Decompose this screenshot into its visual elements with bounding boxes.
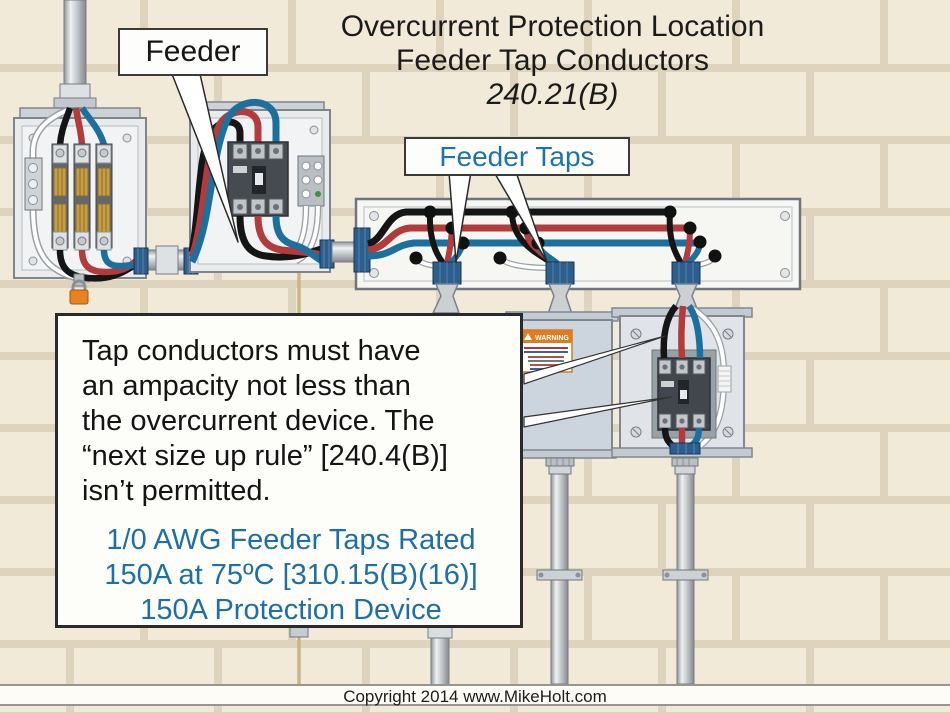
fuse-blocks [52,144,112,250]
note-box: Tap conductors must have an ampacity not… [55,313,523,628]
warning-text: WARNING [535,335,569,342]
breaker-handle [255,173,263,185]
note-line: Tap conductors must have [82,334,510,369]
note-line: “next size up rule” [240.4(B)] [82,439,510,474]
note-blue-line: 1/0 AWG Feeder Taps Rated [72,523,510,558]
title-line-2: Feeder Tap Conductors [280,44,825,78]
feeder-taps-callout: Feeder Taps [404,137,630,176]
copyright-text: Copyright 2014 www.MikeHolt.com [343,687,607,706]
panel-nipple [134,246,198,274]
tap-hub-1 [433,262,461,284]
note-blue-line: 150A Protection Device [72,593,510,628]
title-line-1: Overcurrent Protection Location [280,10,825,44]
note-rating-text: 1/0 AWG Feeder Taps Rated 150A at 75ºC [… [72,523,510,628]
feeder-taps-callout-label: Feeder Taps [439,141,594,173]
conduit-hub [134,248,148,274]
service-disconnect-panel [14,108,146,304]
conduit-strap [663,570,708,580]
note-blue-line: 150A at 75ºC [310.15(B)(16)] [72,558,510,593]
note-line: isn’t permitted. [82,474,510,509]
note-rule-text: Tap conductors must have an ampacity not… [82,334,510,509]
title-code-reference: 240.21(B) [280,78,825,112]
conduit-strap [537,570,582,580]
copyright-footer: Copyright 2014 www.MikeHolt.com [0,684,950,706]
wireway [354,199,800,289]
tap-circuit-breaker [658,358,710,430]
tap-breaker-panel [612,306,752,474]
feeder-callout: Feeder [118,28,268,76]
neutral-ground-bar [298,156,324,206]
page-title: Overcurrent Protection Location Feeder T… [280,10,825,112]
note-line: the overcurrent device. The [82,404,510,439]
conduit-hub [670,443,700,454]
wire-marker [718,366,731,392]
breaker-handle [680,390,687,399]
threaded-hub [546,458,574,474]
diagram-canvas: WARNING [0,0,950,713]
feeder-circuit-breaker [228,142,288,216]
threaded-hub [672,458,698,474]
feeder-callout-label: Feeder [145,35,240,69]
tap-hub-3 [672,262,700,284]
tap-hub-2 [546,262,574,284]
note-line: an ampacity not less than [82,369,510,404]
wireway-entry-hub [354,228,370,272]
